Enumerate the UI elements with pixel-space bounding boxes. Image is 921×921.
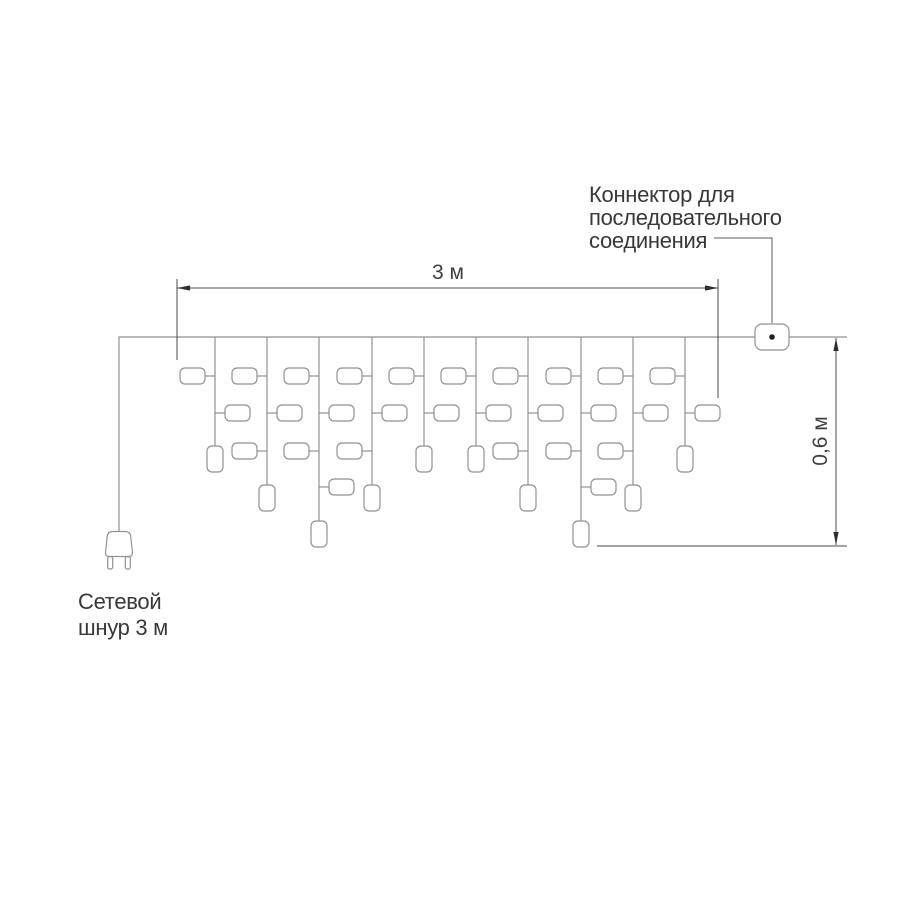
led-end-bulb (416, 446, 432, 472)
led-light (486, 405, 511, 421)
led-light (441, 368, 466, 384)
led-light (598, 443, 623, 459)
led-end-bulb (259, 485, 275, 511)
led-light (225, 405, 250, 421)
led-end-bulb (364, 485, 380, 511)
led-light (643, 405, 668, 421)
led-light (598, 368, 623, 384)
led-light (337, 368, 362, 384)
led-end-bulb (625, 485, 641, 511)
power-cord-label-line1: Сетевой (78, 589, 168, 615)
power-cord-label: Сетевой шнур 3 м (78, 589, 168, 641)
width-arrow-left-icon (177, 285, 190, 290)
led-light (284, 368, 309, 384)
plug-prong-icon (125, 557, 130, 570)
led-light (389, 368, 414, 384)
led-end-bulb (520, 485, 536, 511)
garland-dimension-diagram: Коннектор для последовательного соединен… (0, 0, 921, 921)
led-light (591, 479, 616, 495)
led-light (493, 443, 518, 459)
led-light (284, 443, 309, 459)
diagram-svg (0, 0, 921, 921)
connector-dot (769, 334, 775, 340)
connector-label-line1: Коннектор для (589, 183, 782, 206)
width-dimension-label: 3 м (432, 261, 464, 285)
led-end-bulb (207, 446, 223, 472)
led-light (695, 405, 720, 421)
plug-prong-icon (108, 557, 113, 570)
led-light (650, 368, 675, 384)
led-light (329, 405, 354, 421)
led-light (232, 368, 257, 384)
height-dimension-label: 0,6 м (809, 416, 833, 465)
connector-label: Коннектор для последовательного соединен… (589, 183, 782, 252)
led-light (538, 405, 563, 421)
led-end-bulb (677, 446, 693, 472)
connector-label-line3: соединения (589, 229, 782, 252)
led-end-bulb (468, 446, 484, 472)
power-cord-label-line2: шнур 3 м (78, 615, 168, 641)
led-light (546, 443, 571, 459)
led-light (493, 368, 518, 384)
drop-2 (232, 337, 302, 511)
led-light (180, 368, 205, 384)
height-arrow-top-icon (833, 338, 838, 351)
led-light (382, 405, 407, 421)
connector-label-line2: последовательного (589, 206, 782, 229)
led-light (546, 368, 571, 384)
led-light (337, 443, 362, 459)
led-light (329, 479, 354, 495)
height-arrow-bottom-icon (833, 532, 838, 545)
drop-7 (493, 337, 563, 511)
led-light (232, 443, 257, 459)
led-light (591, 405, 616, 421)
width-arrow-right-icon (705, 285, 718, 290)
led-end-bulb (311, 521, 327, 547)
led-light (277, 405, 302, 421)
power-plug-icon (106, 532, 133, 557)
led-light (434, 405, 459, 421)
led-end-bulb (573, 521, 589, 547)
